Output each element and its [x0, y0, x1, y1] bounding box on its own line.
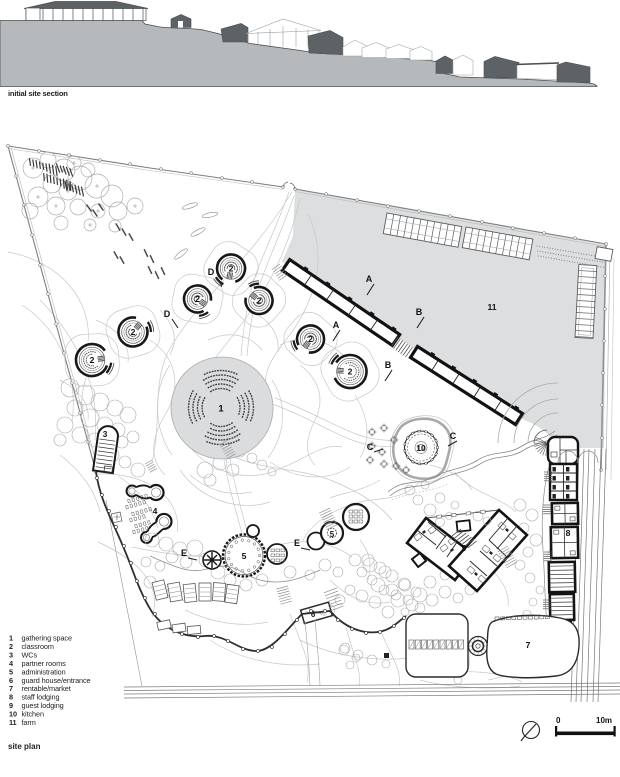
svg-text:D: D: [208, 267, 215, 277]
svg-text:2: 2: [195, 294, 200, 304]
svg-text:B: B: [416, 307, 423, 317]
svg-text:2: 2: [257, 296, 262, 306]
svg-text:9: 9: [462, 543, 467, 553]
svg-text:C: C: [450, 431, 457, 441]
svg-text:5: 5: [242, 551, 247, 561]
svg-text:2: 2: [90, 355, 95, 365]
svg-text:5: 5: [330, 530, 335, 539]
svg-text:2: 2: [229, 264, 234, 274]
svg-text:E: E: [294, 538, 300, 548]
svg-text:1: 1: [218, 404, 224, 415]
svg-text:2: 2: [131, 327, 136, 337]
svg-text:A: A: [366, 274, 373, 284]
svg-text:2: 2: [308, 334, 313, 344]
svg-text:7: 7: [526, 640, 531, 650]
svg-text:E: E: [181, 548, 187, 558]
svg-text:11: 11: [487, 302, 496, 312]
svg-text:11: 11: [9, 718, 17, 727]
svg-text:3: 3: [103, 430, 108, 439]
svg-text:site plan: site plan: [8, 742, 41, 751]
svg-text:farm: farm: [22, 718, 36, 727]
svg-text:B: B: [385, 360, 392, 370]
svg-text:8: 8: [566, 528, 571, 538]
svg-text:2: 2: [348, 367, 353, 377]
svg-text:10m: 10m: [596, 716, 612, 725]
svg-text:A: A: [333, 320, 340, 330]
svg-text:10: 10: [416, 443, 426, 453]
svg-text:0: 0: [556, 716, 561, 725]
svg-text:4: 4: [153, 506, 158, 516]
svg-text:D: D: [164, 309, 171, 319]
svg-text:initial site section: initial site section: [8, 89, 68, 98]
svg-text:C: C: [367, 442, 374, 452]
